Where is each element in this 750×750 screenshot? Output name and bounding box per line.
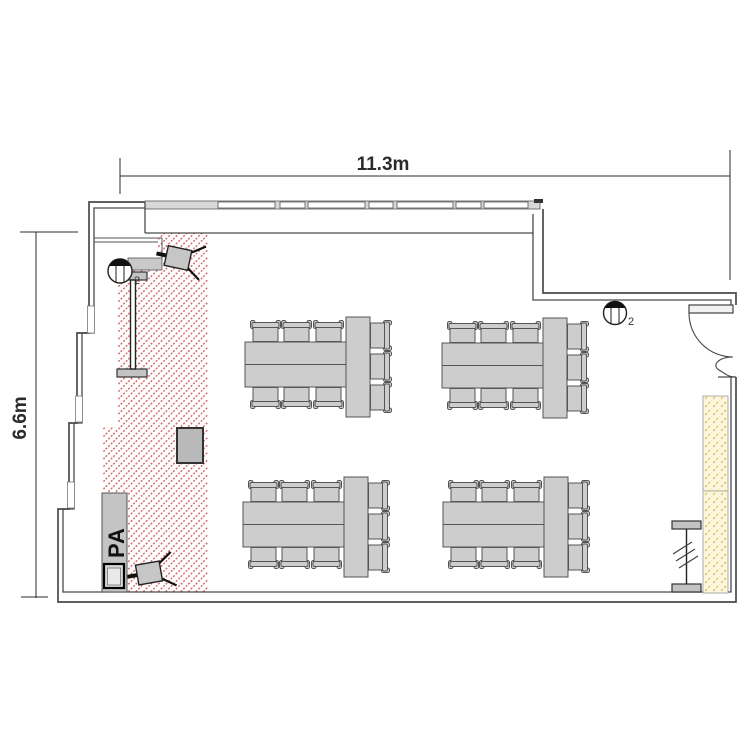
chair (280, 481, 310, 502)
chair (568, 384, 589, 414)
chair (282, 321, 312, 342)
chair (568, 353, 589, 383)
window-wall-north (145, 199, 543, 233)
ceiling-device-left-count: 2 (134, 275, 140, 287)
ceiling-device-top-count: 2 (628, 316, 634, 328)
chair (480, 548, 510, 569)
chair (512, 481, 542, 502)
table-group-4 (443, 477, 590, 577)
chair (511, 322, 541, 343)
chair (312, 548, 342, 569)
chair (249, 481, 279, 502)
table-group-2 (442, 318, 589, 418)
chair (569, 512, 590, 542)
chair (448, 322, 478, 343)
pa-desk: PA (102, 493, 129, 592)
dimension-top-label: 11.3m (357, 154, 410, 175)
podium (177, 428, 203, 463)
chair (479, 389, 509, 410)
ceiling-device-top: 2 (604, 302, 635, 329)
pa-label: PA (104, 527, 129, 558)
table-group-1 (245, 317, 392, 417)
door-leaf (689, 305, 733, 313)
chair (569, 543, 590, 573)
chair (251, 321, 281, 342)
end-table (346, 317, 370, 417)
chair (371, 383, 392, 413)
chair (448, 389, 478, 410)
chair (312, 481, 342, 502)
end-table (544, 477, 568, 577)
chair (314, 321, 344, 342)
chair (449, 548, 479, 569)
dimension-left: 6.6m (10, 232, 78, 598)
wall-boards-right (703, 396, 728, 593)
chair (371, 352, 392, 382)
chair (480, 481, 510, 502)
floor-plan-canvas: 11.3m 6.6m (0, 0, 750, 750)
end-table (543, 318, 567, 418)
chair (251, 388, 281, 409)
chair (569, 481, 590, 511)
window-frame (88, 306, 95, 333)
chair (282, 388, 312, 409)
chair (249, 548, 279, 569)
window-frame (76, 396, 83, 422)
chair (369, 481, 390, 511)
chair (371, 321, 392, 351)
chair (369, 543, 390, 573)
chair (449, 481, 479, 502)
screen-right (672, 521, 701, 592)
chair (314, 388, 344, 409)
dimension-left-label: 6.6m (10, 396, 31, 439)
chair (479, 322, 509, 343)
floor-plan-page: 11.3m 6.6m (0, 0, 750, 750)
table-group-3 (243, 477, 390, 577)
chair (511, 389, 541, 410)
entrance-door (689, 305, 735, 377)
chair (369, 512, 390, 542)
dimension-top: 11.3m (120, 150, 730, 280)
chair (280, 548, 310, 569)
window-frame (68, 482, 75, 508)
chair (568, 322, 589, 352)
chair (512, 548, 542, 569)
end-table (344, 477, 368, 577)
